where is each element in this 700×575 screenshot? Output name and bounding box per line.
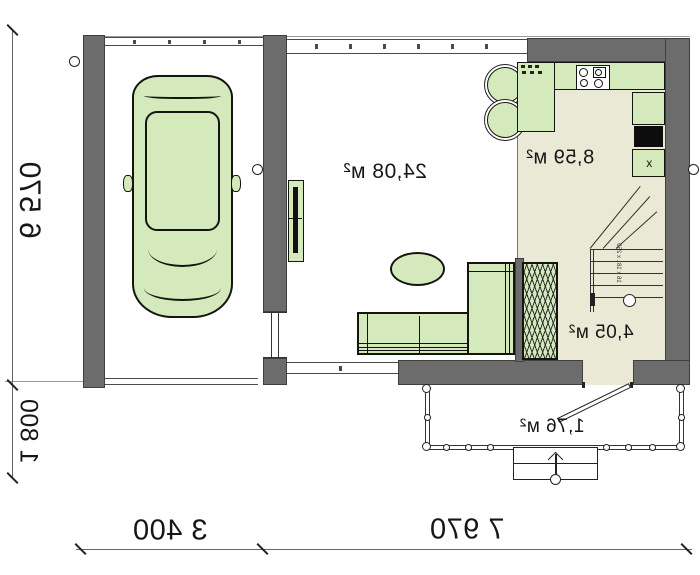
dim-side-porch: 1 800 [14, 398, 43, 463]
railing-post-icon [625, 444, 632, 451]
drainpipe-icon [69, 56, 80, 67]
living-bottom-window [287, 362, 398, 374]
newel-post-icon [623, 294, 636, 307]
stair-post [590, 293, 595, 306]
burner-icon [580, 79, 588, 87]
sofa-chaise [467, 262, 515, 355]
x-cabinet-label: x [646, 156, 653, 170]
porch-area-label: 1,76 м² [519, 416, 584, 438]
car-windshield [148, 231, 217, 267]
railing-post-icon [424, 414, 431, 421]
railing-post-icon [465, 444, 472, 451]
railing-post-icon [603, 444, 610, 451]
right-wall [665, 38, 690, 385]
burner-square-icon [593, 67, 606, 78]
dim-bottom-house: 7 970 [429, 514, 504, 547]
bottom-wall-mid [398, 360, 583, 385]
burner-icon [579, 68, 588, 77]
entry-steps [513, 447, 598, 480]
railing-post-icon [676, 442, 685, 451]
car-hood-line [144, 275, 221, 301]
dimension-line-bottom [76, 549, 692, 550]
dim-bottom-garage: 3 400 [132, 515, 207, 548]
car-mirror-left [123, 175, 133, 192]
drainpipe-icon [252, 164, 263, 175]
kitchen-tall-unit [632, 92, 665, 125]
car-top-view [132, 75, 233, 318]
x-cabinet: x [632, 149, 665, 177]
floor-plan: x 16 x 181 x 250 24,08 м² 8, [0, 0, 700, 575]
kitchen-area-label: 8,59 м² [526, 147, 594, 170]
garage-gate-opening [105, 378, 258, 385]
burner-icon [594, 79, 603, 88]
railing-post-icon [422, 384, 431, 393]
entry-point-icon [550, 474, 561, 485]
car-mirror-right [231, 175, 241, 192]
living-area-label: 24,08 м² [343, 160, 427, 184]
railing-post-icon [487, 444, 494, 451]
garage-left-wall [83, 35, 105, 388]
winder-step-line [590, 186, 641, 249]
stove [576, 65, 610, 90]
railing-post-icon [678, 414, 685, 421]
garage-living-wall-lower [263, 358, 287, 385]
garage-living-window [263, 312, 287, 358]
drainpipe-icon [688, 164, 699, 175]
door-threshold [582, 382, 585, 388]
winder-step-line [616, 211, 658, 249]
appliance-marks-icon [521, 65, 547, 77]
oven [634, 126, 663, 147]
railing-post-icon [676, 384, 685, 393]
stairs-note: 16 x 181 x 250 [615, 243, 621, 282]
living-top-window [287, 39, 527, 54]
entrance-door-floor [583, 360, 633, 385]
coffee-table [390, 252, 445, 286]
staircase: 16 x 181 x 250 [590, 185, 663, 312]
garage-back-window [105, 37, 263, 46]
tv-panel [288, 180, 304, 262]
hall-area-label: 4,05 м² [568, 322, 633, 344]
bottom-wall-right [633, 360, 690, 385]
dim-side-total: 6 570 [12, 161, 46, 239]
entry-arrow-head [548, 452, 564, 468]
driveway-ground-line [5, 381, 83, 382]
railing-post-icon [649, 444, 656, 451]
wardrobe [522, 262, 558, 360]
garage-living-wall [263, 35, 287, 312]
railing-post-icon [422, 442, 431, 451]
railing-post-icon [443, 444, 450, 451]
car-roof [145, 111, 220, 231]
car-rear-window [144, 91, 221, 99]
